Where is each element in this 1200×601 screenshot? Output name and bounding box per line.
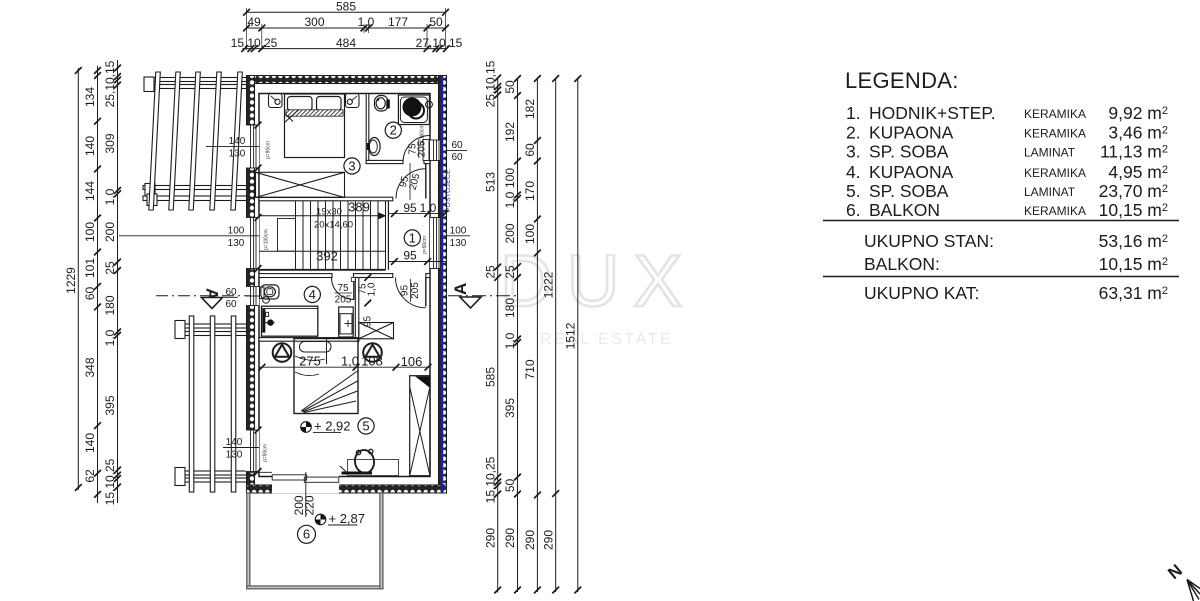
svg-text:23,70 m2: 23,70 m2 [1099,181,1168,201]
svg-text:KUPAONA: KUPAONA [869,123,954,143]
svg-text:180: 180 [103,295,117,315]
svg-text:p=90cm: p=90cm [422,236,428,254]
svg-text:395: 395 [503,398,517,418]
svg-text:50: 50 [503,479,517,493]
svg-text:200: 200 [103,222,117,242]
svg-text:4.: 4. [846,162,861,182]
svg-text:392: 392 [316,249,338,264]
svg-text:25,10,15: 25,10,15 [483,60,497,107]
svg-text:4,95 m2: 4,95 m2 [1108,162,1168,182]
svg-text:309: 309 [103,133,117,153]
svg-text:REAL ESTATE: REAL ESTATE [540,331,673,348]
svg-text:100: 100 [228,226,245,237]
svg-text:49: 49 [247,15,261,29]
svg-text:6.: 6. [846,200,861,220]
svg-text:4: 4 [309,287,316,302]
svg-text:192: 192 [503,122,517,142]
svg-text:UKUPNO STAN:: UKUPNO STAN: [864,231,994,251]
svg-text:LEGENDA:: LEGENDA: [845,68,959,93]
svg-text:290: 290 [541,530,555,550]
svg-text:95: 95 [400,285,411,297]
svg-text:1512: 1512 [563,322,577,349]
svg-text:63,31 m2: 63,31 m2 [1099,283,1168,303]
svg-text:5.: 5. [846,181,861,201]
svg-text:300: 300 [304,15,324,29]
svg-text:177: 177 [388,15,408,29]
svg-text:KERAMIKA: KERAMIKA [1024,107,1086,121]
svg-text:1.: 1. [846,103,861,123]
svg-text:220: 220 [303,495,317,515]
svg-text:15,10,25: 15,10,25 [103,458,117,505]
svg-text:75: 75 [337,283,349,294]
svg-text:290: 290 [483,528,497,548]
svg-text:15,10,25: 15,10,25 [483,456,497,503]
svg-text:10,15 m2: 10,15 m2 [1099,254,1168,274]
svg-text:1,0: 1,0 [367,282,378,296]
svg-text:3,46 m2: 3,46 m2 [1108,123,1168,143]
svg-text:20x14,60: 20x14,60 [314,220,353,231]
svg-text:+ 2,92: + 2,92 [314,419,351,434]
svg-text:10,15 m2: 10,15 m2 [1099,200,1168,220]
svg-text:BALKON:: BALKON: [864,254,940,274]
svg-text:140: 140 [226,437,243,448]
svg-text:BALKON: BALKON [869,200,940,220]
svg-text:100: 100 [503,168,517,188]
svg-text:170: 170 [523,181,537,201]
svg-text:A: A [451,283,470,295]
svg-text:1,0: 1,0 [503,332,517,349]
svg-text:585: 585 [483,367,497,387]
svg-text:KUPAONA: KUPAONA [869,162,954,182]
svg-text:+ 2,87: + 2,87 [329,511,366,526]
svg-text:134: 134 [83,87,97,107]
svg-text:25: 25 [503,265,517,279]
svg-text:3: 3 [348,158,355,173]
svg-text:LAMINAT: LAMINAT [1024,185,1076,199]
svg-text:KERAMIKA: KERAMIKA [1024,166,1086,180]
svg-text:60: 60 [451,140,463,151]
svg-text:710: 710 [523,359,537,379]
svg-text:130: 130 [229,149,246,160]
svg-text:106: 106 [401,354,423,369]
svg-text:25,10,15: 25,10,15 [103,60,117,107]
svg-text:1,0: 1,0 [420,201,437,215]
svg-text:27,10,15: 27,10,15 [416,36,463,50]
svg-text:140: 140 [83,433,97,453]
svg-text:130: 130 [450,238,467,249]
svg-text:1,0: 1,0 [341,353,359,368]
svg-text:205: 205 [410,282,421,299]
svg-text:60: 60 [451,152,463,163]
svg-text:DUX: DUX [500,241,696,322]
svg-text:180: 180 [503,298,517,318]
svg-text:1,0: 1,0 [503,191,517,208]
svg-text:1,0: 1,0 [103,188,117,205]
svg-text:144: 144 [83,181,97,201]
svg-text:100: 100 [83,222,97,242]
svg-text:N: N [1164,561,1186,583]
svg-text:200: 200 [503,223,517,243]
svg-text:15,10,25: 15,10,25 [231,36,278,50]
svg-text:5: 5 [362,418,369,433]
svg-text:140: 140 [229,136,246,147]
svg-text:1,0: 1,0 [358,15,375,29]
svg-text:1222: 1222 [541,271,555,298]
svg-text:HODNIK+STEP.: HODNIK+STEP. [869,103,996,123]
svg-text:SP. SOBA: SP. SOBA [869,181,949,201]
svg-text:95: 95 [363,316,374,328]
svg-text:275: 275 [299,353,321,368]
svg-text:11,13 m2: 11,13 m2 [1100,142,1168,162]
svg-text:101: 101 [83,258,97,278]
svg-text:2.: 2. [846,123,861,143]
svg-text:LAMINAT: LAMINAT [1024,146,1076,160]
svg-text:60: 60 [225,299,237,310]
svg-text:KERAMIKA: KERAMIKA [1024,204,1086,218]
svg-text:395: 395 [103,395,117,415]
svg-text:130: 130 [228,238,245,249]
svg-text:513: 513 [483,172,497,192]
svg-text:100: 100 [523,224,537,244]
svg-text:60: 60 [523,143,537,157]
svg-text:p=90cm: p=90cm [263,444,269,462]
svg-text:60: 60 [83,287,97,301]
svg-text:1,0: 1,0 [103,329,117,346]
svg-text:19x30: 19x30 [316,207,342,218]
svg-text:UKUPNO KAT:: UKUPNO KAT: [864,283,979,303]
svg-text:100: 100 [450,226,467,237]
svg-text:6: 6 [303,527,310,542]
svg-text:389: 389 [348,200,370,215]
svg-text:KERAMIKA: KERAMIKA [1024,127,1086,141]
svg-text:1229: 1229 [64,267,78,294]
svg-text:50: 50 [503,80,517,94]
svg-text:POSTOJEĆE: POSTOJEĆE [443,169,452,212]
svg-text:290: 290 [503,528,517,548]
svg-text:140: 140 [83,136,97,156]
svg-text:p=100cm: p=100cm [264,229,270,250]
svg-text:1: 1 [409,230,416,245]
svg-text:50: 50 [429,15,443,29]
svg-text:SP. SOBA: SP. SOBA [869,142,949,162]
svg-text:3.: 3. [846,142,861,162]
svg-text:290: 290 [523,530,537,550]
svg-text:53,16 m2: 53,16 m2 [1099,231,1168,251]
svg-text:130: 130 [226,450,243,461]
svg-text:25: 25 [103,261,117,275]
svg-text:2: 2 [390,123,397,138]
svg-text:348: 348 [83,357,97,377]
svg-text:95: 95 [403,201,417,215]
svg-text:585: 585 [336,0,356,14]
svg-text:25: 25 [483,265,497,279]
svg-text:p=90cm: p=90cm [266,141,272,159]
svg-text:182: 182 [523,99,537,119]
svg-text:205: 205 [417,140,428,157]
svg-text:95: 95 [403,249,417,263]
svg-text:9,92 m2: 9,92 m2 [1108,103,1168,123]
svg-text:60: 60 [225,287,237,298]
svg-text:484: 484 [336,36,356,50]
svg-text:205: 205 [335,295,352,306]
svg-text:62: 62 [83,469,97,483]
